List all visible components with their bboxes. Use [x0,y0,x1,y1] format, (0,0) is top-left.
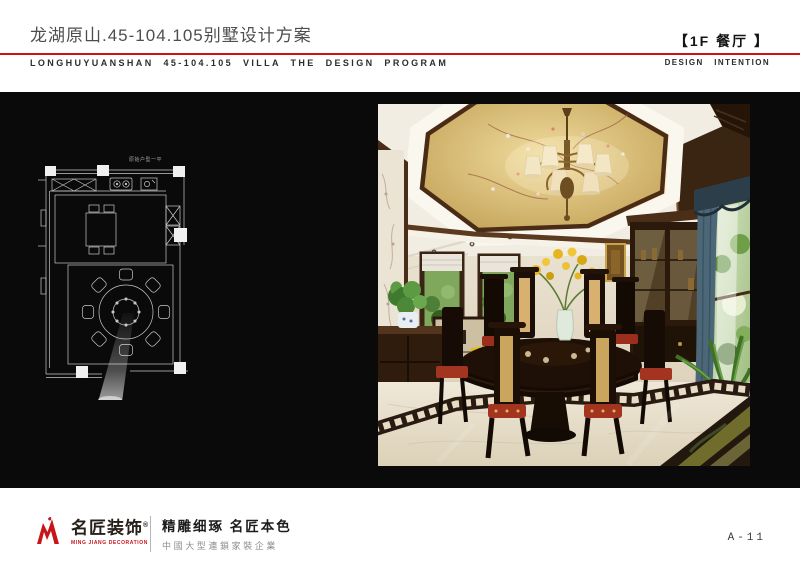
design-intention-label: DESIGN INTENTION [665,58,770,67]
company-logo: 名匠装饰® MING JIANG DECORATION [36,516,149,546]
footer: 名匠装饰® MING JIANG DECORATION 精雕细琢 名匠本色 中國… [0,506,800,566]
slogan-block: 精雕细琢 名匠本色 中國大型連鎖家裝企業 [162,515,292,552]
page-number: A-11 [728,532,766,544]
presentation-board: 原始户型一平 [0,92,800,488]
logo-name-en: MING JIANG DECORATION [71,540,149,546]
floor-plan-label: 原始户型一平 [129,156,162,163]
dining-room-render [378,104,750,466]
framed-artwork [606,244,625,281]
plan-walls [38,167,188,378]
page-subtitle: LONGHUYUANSHAN 45-104.105 VILLA THE DESI… [30,58,448,68]
floor-plan-drawing: 原始户型一平 [38,150,218,400]
mingjiang-logo-icon [36,516,66,546]
plan-upper-room [55,195,180,263]
design-board-page: 龙湖原山.45-104.105别墅设计方案 【1F 餐厅 】 LONGHUYUA… [0,0,800,566]
plan-kitchen-fixtures [52,178,157,191]
logo-name-text: 名匠装饰 [71,519,143,538]
slogan-main: 精雕细琢 名匠本色 [162,515,292,535]
logo-name: 名匠装饰® [71,516,149,538]
plan-light-cone [98,313,134,400]
registered-mark: ® [143,522,149,529]
chair-back-right [612,277,639,344]
page-title: 龙湖原山.45-104.105别墅设计方案 [30,21,312,46]
slogan-sub: 中國大型連鎖家裝企業 [162,539,292,552]
room-tag: 【1F 餐厅 】 [674,31,770,51]
header-divider-line [0,53,800,55]
footer-divider [150,516,151,552]
